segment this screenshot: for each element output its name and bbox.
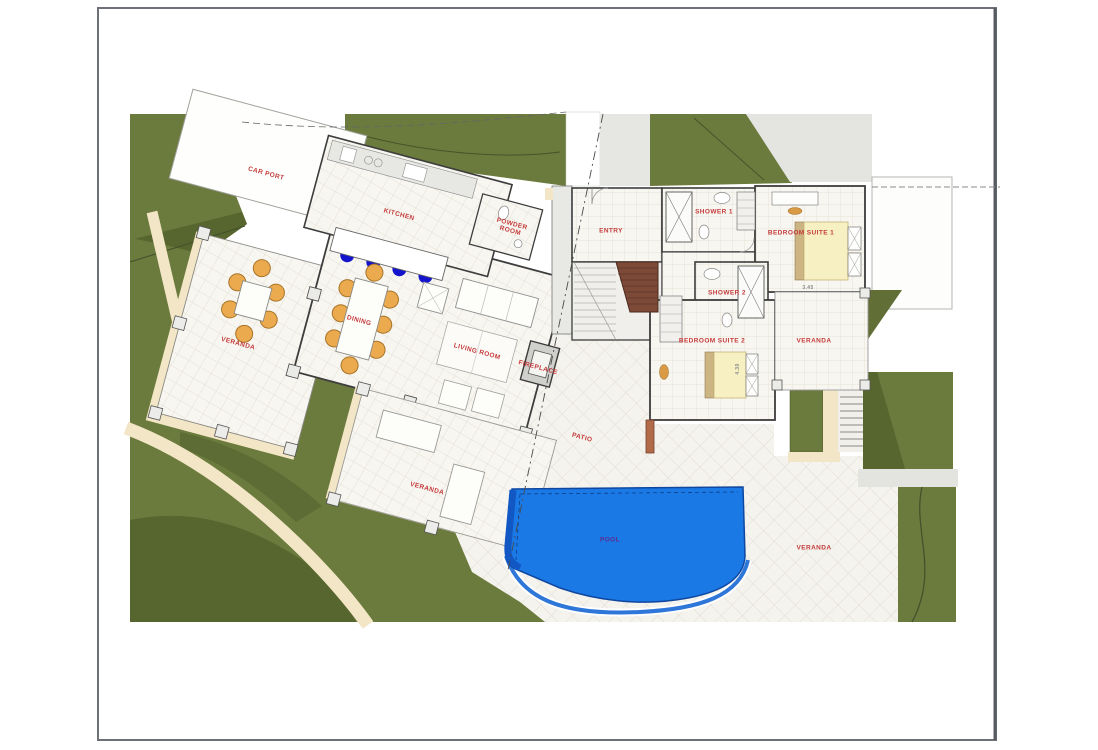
floor-plan-drawing bbox=[0, 0, 1098, 750]
floor-plan-page: CAR PORTKITCHENPOWDER ROOMENTRYSHOWER 1B… bbox=[0, 0, 1098, 750]
